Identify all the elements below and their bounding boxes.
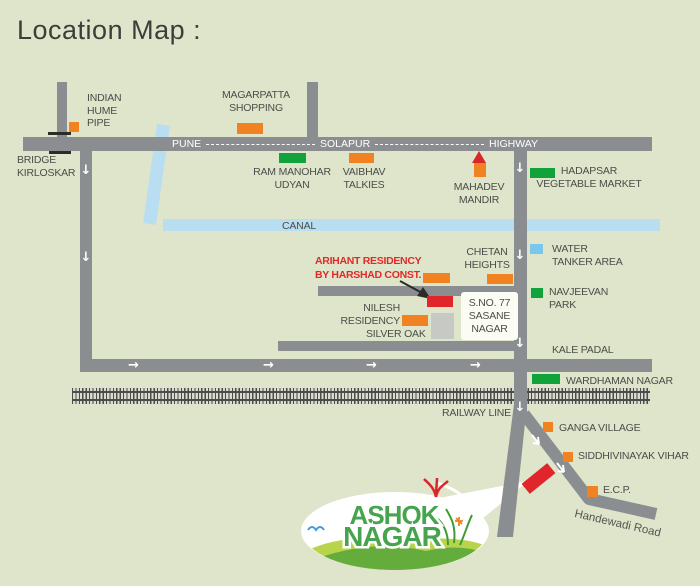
mahadev-temple-roof-icon <box>472 151 486 163</box>
marker-ram-manohar <box>279 153 306 163</box>
label-sasane-nagar: S.NO. 77SASANENAGAR <box>461 297 518 336</box>
marker-magarpatta <box>237 123 263 134</box>
label-water-tanker: WATERTANKER AREA <box>552 243 623 268</box>
marker-nilesh <box>402 315 428 326</box>
marker-silver-oak <box>431 313 454 339</box>
marker-mahadev <box>474 163 486 177</box>
label-kale-padal: KALE PADAL <box>552 344 613 357</box>
marker-water-tanker <box>530 244 543 254</box>
label-canal: CANAL <box>282 220 316 233</box>
location-map: Location Map : PUNE SOLAPUR HIGHWAY ↓ ↓ … <box>0 0 700 586</box>
label-wardhaman-nagar: WARDHAMAN NAGAR <box>566 375 673 388</box>
label-chetan-heights: CHETANHEIGHTS <box>460 246 514 271</box>
right-arrow-icon: → <box>128 359 139 372</box>
logo-red-plant-icon <box>424 478 448 497</box>
label-railway-line: RAILWAY LINE <box>442 407 511 420</box>
label-mahadev: MAHADEVMANDIR <box>450 181 508 206</box>
station-road <box>497 404 527 537</box>
down-arrow-icon: ↓ <box>513 162 527 175</box>
label-hadapsar: HADAPSARVEGETABLE MARKET <box>534 165 644 190</box>
marker-ecp <box>587 486 598 497</box>
label-arihant-residency: ARIHANT RESIDENCYBY HARSHAD CONST. <box>315 255 421 282</box>
label-siddhivinayak-vihar: SIDDHIVINAYAK VIHAR <box>578 450 689 463</box>
marker-ganga <box>543 422 553 432</box>
right-arrow-icon: → <box>263 359 274 372</box>
label-ecp: E.C.P. <box>603 484 631 497</box>
label-bridge-kirloskar: BRIDGEKIRLOSKAR <box>17 154 75 179</box>
marker-arihant-site <box>427 296 453 307</box>
marker-wardhaman <box>532 374 560 384</box>
marker-vaibhav <box>349 153 374 163</box>
label-ram-manohar: RAM MANOHARUDYAN <box>250 166 334 191</box>
label-vaibhav: VAIBHAVTALKIES <box>338 166 390 191</box>
down-arrow-icon: ↓ <box>513 249 527 262</box>
logo-line2: NAGAR <box>343 521 441 552</box>
label-silver-oak: SILVER OAK <box>366 328 426 341</box>
label-magarpatta: MAGARPATTASHOPPING <box>214 89 298 114</box>
marker-indian-hume-pipe <box>69 122 79 132</box>
right-arrow-icon: → <box>366 359 377 372</box>
label-indian-hume-pipe: INDIANHUMEPIPE <box>87 92 121 130</box>
down-arrow-icon: ↓ <box>80 251 92 264</box>
marker-chetan <box>487 274 513 284</box>
label-ganga-village: GANGA VILLAGE <box>559 422 640 435</box>
ashok-nagar-logo: ASHOK NAGAR <box>296 477 496 582</box>
marker-navjeevan <box>531 288 543 298</box>
marker-arihant-orange <box>423 273 450 283</box>
marker-siddhivinayak <box>563 452 573 462</box>
down-arrow-icon: ↓ <box>513 401 527 414</box>
right-arrow-icon: → <box>470 359 481 372</box>
label-nilesh-residency: NILESHRESIDENCY <box>336 302 400 327</box>
label-navjeevan-park: NAVJEEVANPARK <box>549 286 608 311</box>
down-arrow-icon: ↓ <box>80 164 92 177</box>
